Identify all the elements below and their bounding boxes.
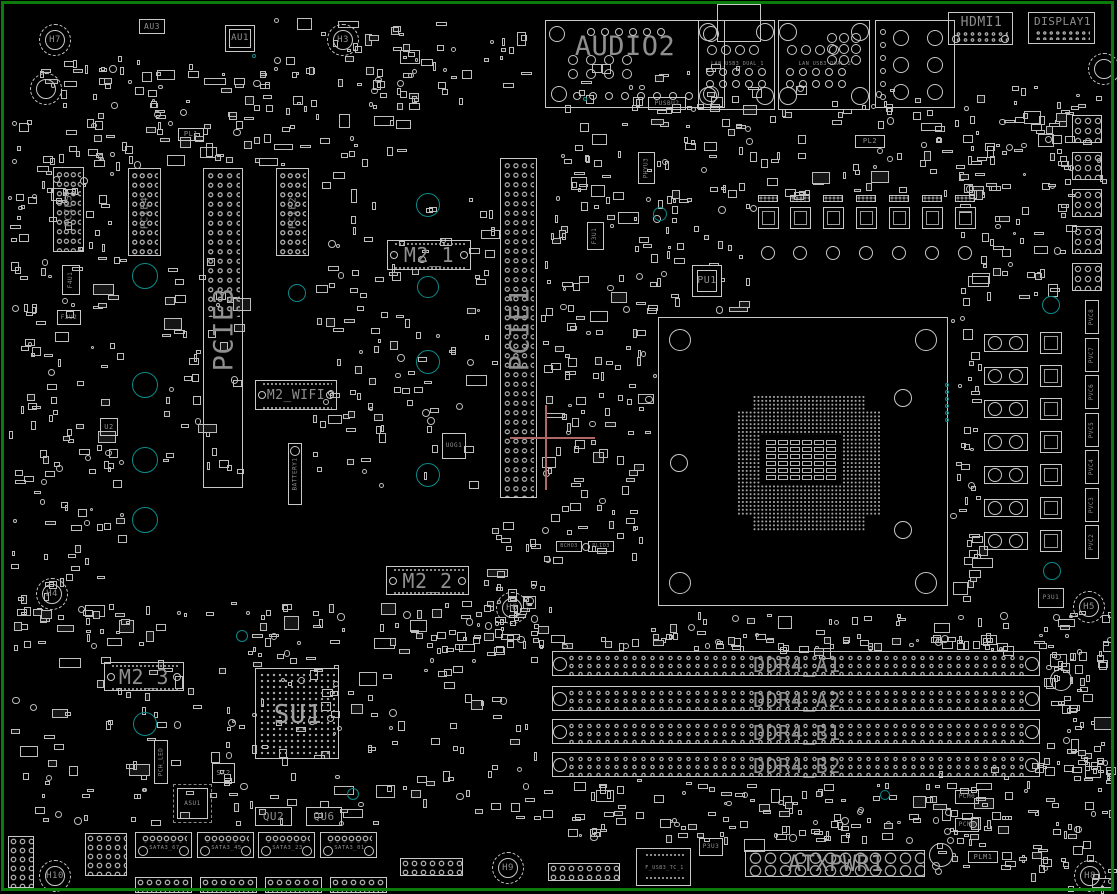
board-outline: [1, 1, 1114, 891]
selection-crosshair: [510, 437, 595, 439]
pcb-board-canvas: PVC8PVC7PVC6PVC5PVC4PVC3PVC2PCIE5PCIE4PC…: [0, 0, 1117, 894]
selection-crosshair: [545, 405, 547, 490]
